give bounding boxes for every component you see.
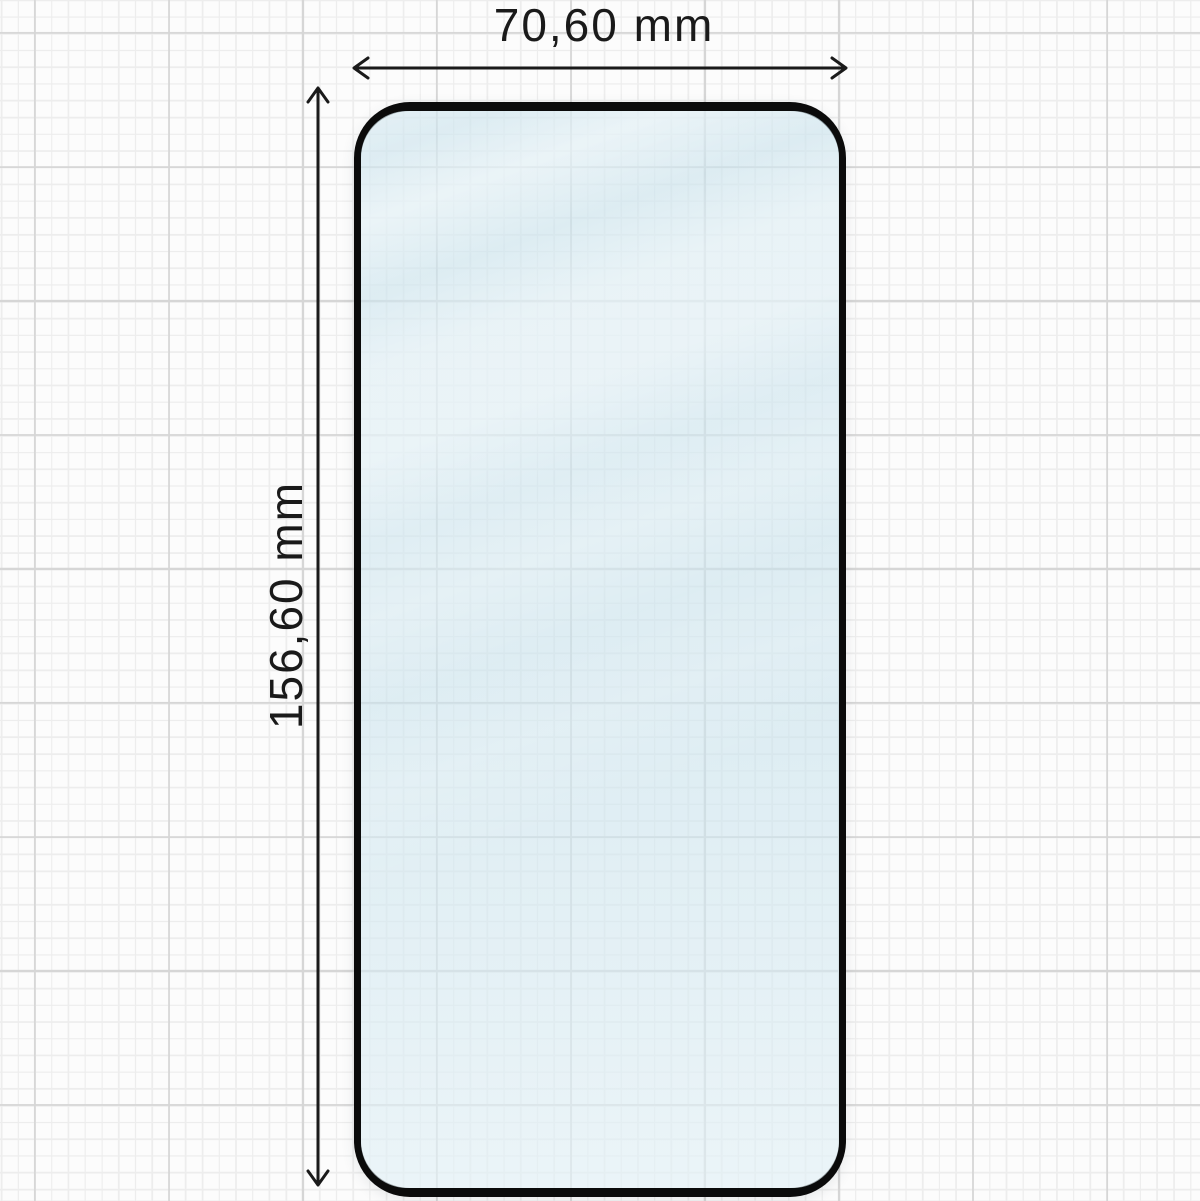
- height-dimension-label: 156,60 mm: [263, 481, 309, 729]
- arrow-right-icon: [832, 58, 846, 78]
- screen-protector-glass: [361, 111, 839, 1188]
- arrow-down-icon: [308, 1171, 328, 1185]
- arrow-up-icon: [308, 88, 328, 102]
- width-dimension-label: 70,60 mm: [494, 2, 715, 48]
- screen-protector-frame: [354, 102, 846, 1197]
- glass-reflection-highlight: [361, 111, 839, 1188]
- arrow-left-icon: [354, 58, 368, 78]
- dimension-diagram: 70,60 mm 156,60 mm: [0, 0, 1200, 1201]
